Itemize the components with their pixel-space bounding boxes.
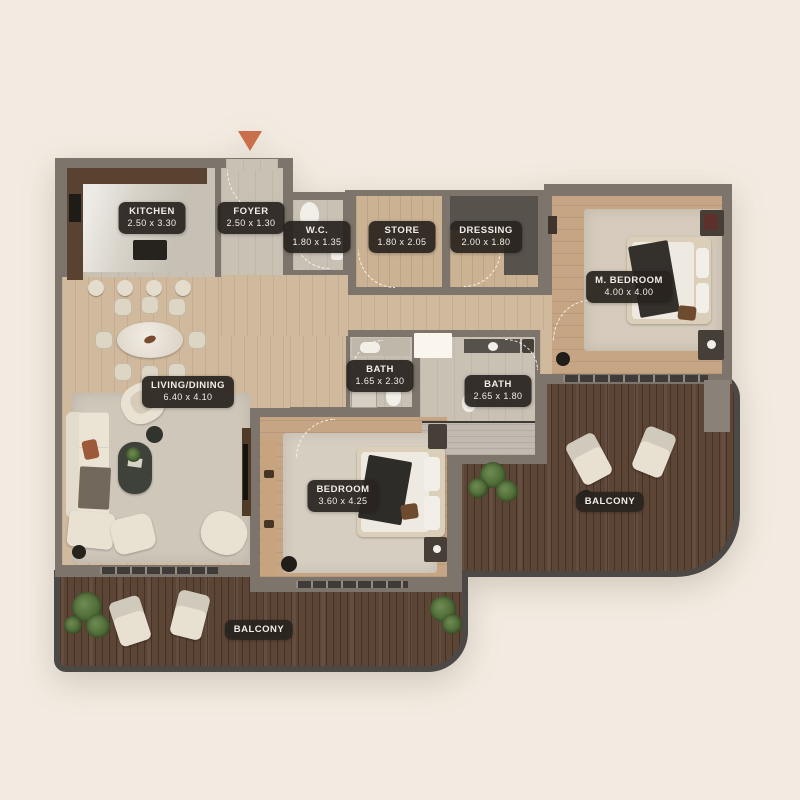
room-name: LIVING/DINING: [151, 380, 225, 392]
floor-plan: KITCHEN 2.50 x 3.30 FOYER 2.50 x 1.30 W.…: [0, 0, 800, 800]
console-item: [264, 470, 274, 478]
master-bed-pillow: [696, 248, 709, 278]
room-dims: 1.80 x 1.35: [293, 237, 342, 249]
room-name: BALCONY: [234, 624, 284, 636]
room-name: W.C.: [293, 225, 342, 237]
room-dims: 4.00 x 4.00: [595, 287, 663, 299]
room-name: BATH: [474, 379, 523, 391]
balcony-plant: [468, 478, 488, 498]
room-label-kitchen: KITCHEN 2.50 x 3.30: [119, 202, 186, 234]
room-label-bath-1: BATH 1.65 x 2.30: [347, 360, 414, 392]
dining-chair: [188, 331, 206, 349]
living-window: [100, 567, 218, 574]
room-label-foyer: FOYER 2.50 x 1.30: [218, 202, 285, 234]
hall-floor-master-entry: [540, 330, 552, 374]
room-name: BATH: [356, 364, 405, 376]
room-name: BEDROOM: [316, 484, 369, 496]
tv-screen: [243, 444, 248, 500]
room-label-balcony-bottom: BALCONY: [225, 620, 293, 640]
room-dims: 1.80 x 2.05: [378, 237, 427, 249]
room-label-bath-2: BATH 2.65 x 1.80: [465, 375, 532, 407]
nightstand-lamp: [433, 545, 441, 553]
room-name: STORE: [378, 225, 427, 237]
bar-stool: [146, 280, 162, 296]
room-dims: 2.50 x 3.30: [128, 218, 177, 230]
hall-floor-c: [290, 336, 346, 407]
balcony-plant: [86, 614, 110, 638]
balcony-plant: [64, 616, 82, 634]
balcony-plant: [496, 480, 518, 502]
bar-stool: [175, 280, 191, 296]
dining-chair: [95, 331, 113, 349]
room-dims: 3.60 x 4.25: [316, 496, 369, 508]
room-label-living-dining: LIVING/DINING 6.40 x 4.10: [142, 376, 234, 408]
master-bed-cushion: [677, 305, 696, 321]
room-label-wc: W.C. 1.80 x 1.35: [284, 221, 351, 253]
master-nightstand-decor: [704, 214, 718, 230]
bed-pillow: [424, 496, 440, 530]
hall-floor-a: [221, 275, 348, 336]
master-ceiling-fan: [556, 352, 570, 366]
room-name: M. BEDROOM: [595, 275, 663, 287]
room-label-bedroom: BEDROOM 3.60 x 4.25: [307, 480, 378, 512]
bedroom-console: [262, 438, 277, 576]
room-dims: 6.40 x 4.10: [151, 392, 225, 404]
kitchen-upper-cabinets: [67, 168, 207, 184]
entrance-opening: [226, 159, 278, 170]
master-window: [563, 375, 708, 382]
ceiling-fan: [281, 556, 297, 572]
room-label-store: STORE 1.80 x 2.05: [369, 221, 436, 253]
kitchen-appliance: [69, 194, 81, 222]
room-name: BALCONY: [585, 496, 635, 508]
nightstand: [428, 424, 447, 449]
room-label-balcony-right: BALCONY: [576, 492, 644, 512]
room-label-dressing: DRESSING 2.00 x 1.80: [450, 221, 522, 253]
room-label-master-bedroom: M. BEDROOM 4.00 x 4.00: [586, 271, 672, 303]
living-plant: [126, 447, 141, 462]
room-name: KITCHEN: [128, 206, 177, 218]
sofa-chaise: [66, 510, 116, 551]
entrance-marker-icon: [238, 131, 262, 151]
hall-floor-b: [348, 295, 552, 330]
balcony-planter-block: [704, 380, 730, 432]
dining-chair: [114, 363, 132, 381]
floor-lamp: [72, 545, 86, 559]
room-dims: 2.00 x 1.80: [459, 237, 513, 249]
room-dims: 2.65 x 1.80: [474, 391, 523, 403]
master-bed-pillow: [696, 283, 709, 313]
balcony-plant: [442, 614, 462, 634]
side-table: [146, 426, 163, 443]
bedroom-window: [296, 581, 408, 588]
sofa-throw: [78, 466, 111, 510]
bath2-sink: [488, 342, 498, 351]
bar-stool: [117, 280, 133, 296]
dining-chair: [168, 298, 186, 316]
bed-cushion: [400, 503, 419, 520]
room-dims: 2.50 x 1.30: [227, 218, 276, 230]
master-nightstand-lamp: [707, 340, 716, 349]
service-void: [414, 333, 452, 358]
master-door-hinge-block: [548, 216, 557, 234]
sofa-back: [66, 412, 79, 518]
room-name: FOYER: [227, 206, 276, 218]
dining-chair: [141, 296, 159, 314]
dining-chair: [114, 298, 132, 316]
room-name: DRESSING: [459, 225, 513, 237]
bar-stool: [88, 280, 104, 296]
room-dims: 1.65 x 2.30: [356, 376, 405, 388]
bed-pillow: [424, 457, 440, 491]
cooktop: [133, 240, 167, 260]
console-item: [264, 520, 274, 528]
